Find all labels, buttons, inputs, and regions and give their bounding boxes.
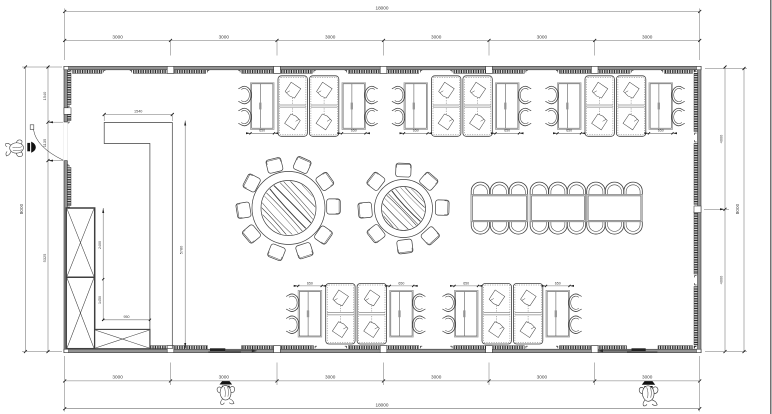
- svg-text:650: 650: [398, 281, 404, 285]
- svg-text:650: 650: [566, 129, 572, 133]
- svg-text:1450: 1450: [98, 296, 102, 304]
- svg-text:4000: 4000: [718, 134, 723, 143]
- svg-text:1540: 1540: [42, 91, 47, 100]
- svg-text:650: 650: [658, 129, 664, 133]
- svg-text:3000: 3000: [431, 375, 442, 380]
- svg-text:3000: 3000: [325, 34, 336, 39]
- svg-text:650: 650: [351, 129, 357, 133]
- svg-text:650: 650: [504, 129, 510, 133]
- svg-text:3000: 3000: [219, 375, 230, 380]
- svg-text:3000: 3000: [537, 375, 548, 380]
- svg-text:18000: 18000: [375, 5, 388, 10]
- svg-text:3000: 3000: [642, 34, 653, 39]
- svg-text:3000: 3000: [431, 34, 442, 39]
- svg-text:3000: 3000: [537, 34, 548, 39]
- svg-text:2400: 2400: [98, 241, 102, 249]
- svg-text:650: 650: [555, 281, 561, 285]
- svg-text:1540: 1540: [134, 110, 142, 114]
- svg-text:4000: 4000: [718, 275, 723, 284]
- svg-text:3000: 3000: [325, 375, 336, 380]
- svg-text:3000: 3000: [112, 375, 123, 380]
- svg-text:5325: 5325: [42, 254, 47, 263]
- svg-text:950: 950: [124, 315, 130, 319]
- svg-text:5780: 5780: [180, 246, 184, 254]
- svg-text:650: 650: [259, 129, 265, 133]
- svg-text:3000: 3000: [642, 375, 653, 380]
- svg-text:8000: 8000: [735, 203, 740, 214]
- svg-text:650: 650: [307, 281, 313, 285]
- svg-text:650: 650: [463, 281, 469, 285]
- svg-text:18000: 18000: [375, 403, 388, 408]
- svg-text:3000: 3000: [112, 34, 123, 39]
- svg-text:3000: 3000: [219, 34, 230, 39]
- svg-text:8000: 8000: [19, 203, 24, 214]
- svg-text:650: 650: [413, 129, 419, 133]
